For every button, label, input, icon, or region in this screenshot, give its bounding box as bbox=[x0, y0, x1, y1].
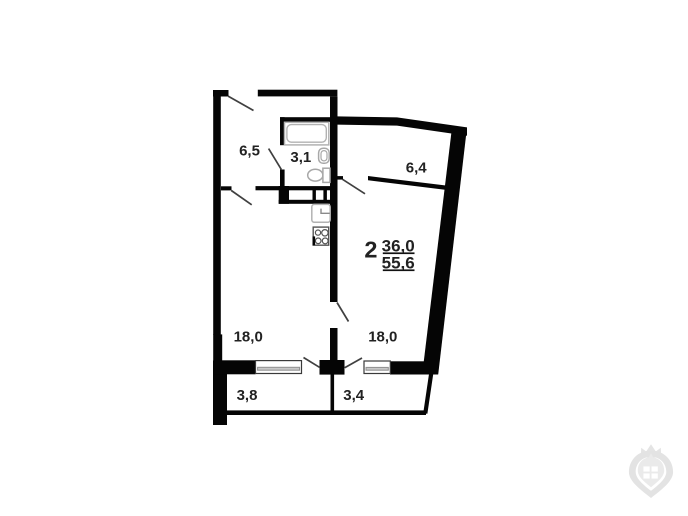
svg-text:18,0: 18,0 bbox=[234, 329, 263, 346]
svg-text:3,8: 3,8 bbox=[237, 387, 258, 404]
svg-text:6,4: 6,4 bbox=[406, 159, 428, 176]
svg-text:18,0: 18,0 bbox=[368, 329, 397, 346]
svg-text:6,5: 6,5 bbox=[239, 142, 260, 159]
svg-text:3,4: 3,4 bbox=[343, 387, 365, 404]
svg-text:3,1: 3,1 bbox=[290, 149, 311, 166]
svg-text:2: 2 bbox=[364, 237, 377, 263]
